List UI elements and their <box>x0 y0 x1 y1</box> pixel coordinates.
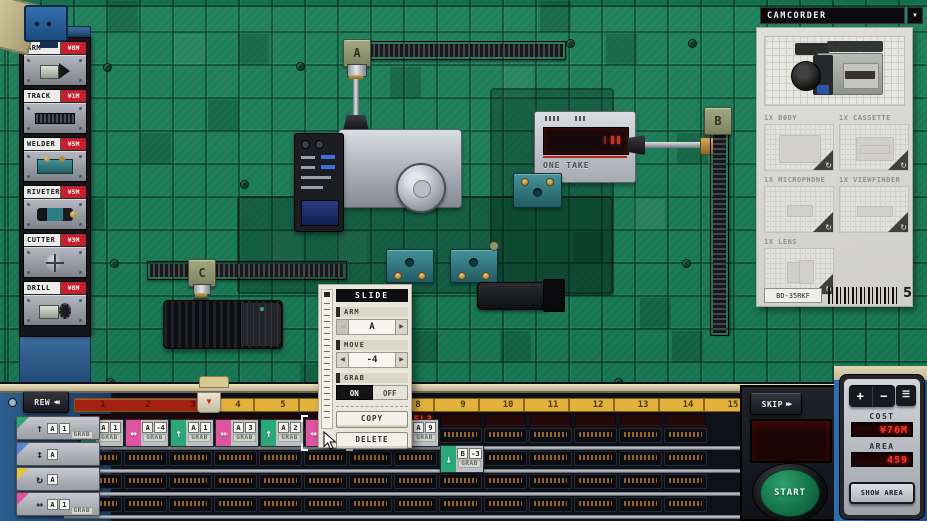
cost-machine: + − ☰ COST ¥76M AREA 459 SHOW AREA <box>834 366 927 521</box>
arm-stepper: ◀ A ▶ <box>336 319 408 335</box>
instruction-block[interactable]: ↔A3GRAB <box>215 419 259 447</box>
part-silhouette <box>799 260 814 284</box>
chevron-down-icon[interactable]: ▼ <box>907 7 923 24</box>
skip-label: SKIP <box>762 400 783 409</box>
rotate-icon: ↻ <box>825 223 832 232</box>
zoom-in-button[interactable]: + <box>849 386 872 407</box>
block-cell: 1 <box>59 499 70 510</box>
part-cell-microphone[interactable]: 1X MICROPHONE↻ <box>764 176 834 234</box>
deck-rail <box>64 492 740 496</box>
timeline-socket[interactable] <box>484 497 527 512</box>
skip-icon: ▶▶ <box>786 400 790 408</box>
ruler-number: 4 <box>216 400 260 410</box>
block-cell: -4 <box>154 422 166 433</box>
palette-block-lr[interactable]: ↔A1GRAB <box>16 492 100 516</box>
rotate-icon: ↻ <box>900 161 907 170</box>
camcorder-control-panel[interactable] <box>294 133 344 232</box>
tool-price-badge: ¥8M <box>61 42 86 54</box>
block-cell: A <box>47 449 58 460</box>
down-arrow-icon: ↓ <box>441 446 456 472</box>
led-display <box>665 414 706 426</box>
paper-fold <box>883 277 913 307</box>
camcorder-lens-mount[interactable] <box>396 163 446 213</box>
rewind-button[interactable]: REW◀◀ <box>23 391 69 413</box>
block-cell: -3 <box>469 448 481 459</box>
block-cell: 1 <box>200 422 211 433</box>
product-image <box>764 36 905 106</box>
move-value: -4 <box>349 352 395 368</box>
ruler-number: 5 <box>261 400 305 410</box>
arm-section-label: ARM <box>336 307 408 317</box>
area-value-display: 459 <box>851 452 913 467</box>
tile-shade <box>174 34 205 65</box>
tile-shade <box>238 34 269 65</box>
ruler-number: 12 <box>576 400 620 410</box>
grab-tag: GRAB <box>143 434 165 442</box>
timeline-socket[interactable] <box>349 451 392 466</box>
tile-shade <box>540 1 571 32</box>
timeline-socket[interactable] <box>304 474 347 489</box>
move-prev-button[interactable]: ◀ <box>336 352 349 368</box>
timeline-socket[interactable] <box>574 474 617 489</box>
cost-panel-frame: + − ☰ COST ¥76M AREA 459 SHOW AREA <box>839 374 925 520</box>
part-quantity-label: 1X LENS <box>764 238 834 248</box>
tool-price-badge: ¥5M <box>61 186 86 198</box>
timeline-socket[interactable] <box>619 428 662 443</box>
palette-corner <box>17 493 29 505</box>
led-display <box>620 414 661 426</box>
mouse-cursor <box>323 431 339 451</box>
tool-price-badge: ¥8M <box>61 282 86 294</box>
timeline-socket[interactable] <box>169 474 212 489</box>
arm-b-carriage[interactable]: B <box>704 107 732 135</box>
timeline-socket[interactable] <box>484 474 527 489</box>
tool-card-drill[interactable]: DRILL¥8M <box>23 281 87 326</box>
machine-arm-head <box>24 5 68 42</box>
instruction-block[interactable]: ↑A2GRAB <box>260 419 304 447</box>
screw-icon <box>566 39 575 48</box>
led-display <box>440 414 481 426</box>
up-arrow-icon: ↑ <box>171 420 186 446</box>
part-silhouette <box>779 135 821 163</box>
block-cell: A <box>188 422 199 433</box>
led-display <box>530 414 571 426</box>
tile-shade <box>606 34 637 65</box>
start-label: START <box>774 488 806 498</box>
arm-value: A <box>349 319 395 335</box>
timeline-socket[interactable] <box>349 497 392 512</box>
tool-sidebar: ARM¥8MTRACK¥1MWELDER¥5MRIVETER¥5MCUTTER¥… <box>19 37 91 337</box>
block-cell: A <box>47 499 58 510</box>
welded-part-1[interactable] <box>386 249 434 283</box>
skip-button[interactable]: SKIP▶▶ <box>750 393 802 415</box>
screw-icon <box>110 259 119 268</box>
timeline-ruler: 123456789101112131415 <box>74 398 750 412</box>
timeline-socket[interactable] <box>259 474 302 489</box>
rewind-label: REW <box>34 398 50 407</box>
delete-button[interactable]: DELETE <box>336 432 408 449</box>
ruler-number: 9 <box>441 400 485 410</box>
welded-part-3[interactable] <box>513 173 562 208</box>
screw-icon <box>296 62 305 71</box>
block-cell: A <box>47 423 58 434</box>
timeline-socket[interactable] <box>394 474 437 489</box>
part-quantity-label: 1X VIEWFINDER <box>839 176 909 186</box>
up-arrow-icon: ↑ <box>32 422 47 435</box>
timeline-socket[interactable] <box>214 497 257 512</box>
part-silhouette <box>857 206 893 217</box>
rotate-icon: ↻ <box>825 161 832 170</box>
timeline-socket[interactable] <box>259 451 302 466</box>
zoom-out-button[interactable]: − <box>872 386 896 407</box>
timeline-socket[interactable] <box>304 451 347 466</box>
timeline-socket[interactable] <box>664 474 707 489</box>
ruler-number: 13 <box>621 400 665 410</box>
instruction-popup: ↓ SLIDE ARM ◀ A ▶ MOVE ◀ -4 ▶ GRAB ON OF… <box>318 284 412 448</box>
tile-shade <box>500 331 531 362</box>
microphone-part[interactable] <box>477 282 549 310</box>
palette-corner <box>17 417 29 429</box>
timeline-socket[interactable] <box>169 497 212 512</box>
timeline-socket[interactable] <box>574 428 617 443</box>
horizontal-arrow-icon: ↔ <box>216 420 231 446</box>
palette-corner <box>17 443 29 455</box>
timeline-socket[interactable] <box>394 451 437 466</box>
timeline-socket[interactable] <box>574 497 617 512</box>
rewind-icon: ◀◀ <box>53 398 57 406</box>
grab-off-option[interactable]: OFF <box>373 385 409 400</box>
deck-top-edge <box>0 384 836 393</box>
timeline-deck: REW◀◀ 123456789101112131415 ▼ EL3 ↑A1GRA… <box>0 382 927 521</box>
move-next-button[interactable]: ▶ <box>395 352 408 368</box>
arm-a-carriage[interactable]: A <box>343 39 371 67</box>
block-cell: A <box>233 422 244 433</box>
instruction-block[interactable]: ↔A-4GRAB <box>125 419 169 447</box>
grab-tag: GRAB <box>413 434 435 442</box>
block-cell: B <box>457 448 468 459</box>
timeline-socket[interactable] <box>619 451 662 466</box>
screw-icon <box>103 63 112 72</box>
screw-icon <box>688 39 697 48</box>
deck-rail <box>64 515 740 519</box>
palette-block-rot[interactable]: ↻A <box>16 467 100 491</box>
grab-tag: GRAB <box>98 434 120 442</box>
tile-shade <box>634 199 665 230</box>
tool-label: DRILL <box>24 282 61 294</box>
rotate-icon: ↻ <box>900 223 907 232</box>
drill-icon <box>39 303 71 319</box>
block-cell: 1 <box>59 423 70 434</box>
timeline-socket[interactable] <box>529 451 572 466</box>
timeline-socket[interactable] <box>619 497 662 512</box>
popup-divider <box>336 406 408 407</box>
playhead-marker[interactable]: ▼ <box>197 392 221 413</box>
tool-label: RIVETER <box>24 186 61 198</box>
block-cell: A <box>142 422 153 433</box>
tool-label: WELDER <box>24 138 61 150</box>
timeline-socket[interactable] <box>529 497 572 512</box>
grab-on-option[interactable]: ON <box>336 385 373 400</box>
timeline-socket[interactable] <box>439 428 482 443</box>
vertical-arrows-icon: ↕ <box>32 448 47 461</box>
tile-shade <box>140 133 171 164</box>
grab-section-label: GRAB <box>336 373 408 383</box>
move-section-label: MOVE <box>336 340 408 350</box>
arm-b-rod <box>645 142 703 148</box>
arm-c-ring <box>195 293 207 297</box>
product-code: BD-35RKF <box>764 288 822 303</box>
arm-icon <box>40 63 70 79</box>
block-cell: 9 <box>425 422 436 433</box>
instruction-block[interactable]: ↑A1GRAB <box>170 419 214 447</box>
tool-card-track[interactable]: TRACK¥1M <box>23 89 87 134</box>
screw-icon <box>240 180 249 189</box>
pin-part[interactable] <box>489 241 499 251</box>
led-display <box>575 414 616 426</box>
timeline-socket[interactable] <box>529 474 572 489</box>
palette-corner <box>17 468 29 480</box>
timeline-socket[interactable] <box>394 497 437 512</box>
grab-tag: GRAB <box>278 434 300 442</box>
ruler-number: 14 <box>666 400 710 410</box>
arm-prev-button[interactable]: ◀ <box>336 319 349 335</box>
timeline-socket[interactable] <box>124 474 167 489</box>
tile-shade <box>390 67 421 98</box>
grab-tag: GRAB <box>188 434 210 442</box>
screw-icon <box>682 259 691 268</box>
timeline-socket[interactable] <box>484 428 527 443</box>
show-area-button[interactable]: SHOW AREA <box>849 482 915 504</box>
part-silhouette <box>860 145 890 154</box>
grab-tag: GRAB <box>233 434 255 442</box>
part-quantity-label: 1X B0DY <box>764 114 834 124</box>
product-panel: CAMCORDER ▼ 1X B0DY↻1X CASSETTE↻1X MICRO… <box>753 3 918 313</box>
popup-ruler-strip <box>321 289 333 429</box>
grab-tag: GRAB <box>71 431 93 439</box>
run-display <box>750 419 832 463</box>
microphone-cap <box>543 279 565 312</box>
run-console: SKIP▶▶ START <box>740 385 836 521</box>
arm-a-rod <box>353 79 359 117</box>
block-cell: A <box>47 474 58 485</box>
tool-card-welder[interactable]: WELDER¥5M <box>23 137 87 182</box>
timeline-socket[interactable] <box>169 451 212 466</box>
timeline-socket[interactable] <box>124 451 167 466</box>
grab-tag: GRAB <box>71 507 93 515</box>
timeline-socket[interactable] <box>574 451 617 466</box>
palette-block-up[interactable]: ↑A1GRAB <box>16 416 100 440</box>
palette-block-ud[interactable]: ↕A <box>16 442 100 466</box>
start-button-ring: START <box>752 463 828 521</box>
tool-label: CUTTER <box>24 234 61 246</box>
tool-card-cutter[interactable]: CUTTER¥3M <box>23 233 87 278</box>
timeline-socket[interactable] <box>664 497 707 512</box>
timeline-socket[interactable] <box>439 497 482 512</box>
move-stepper: ◀ -4 ▶ <box>336 352 408 368</box>
tool-label: TRACK <box>24 90 61 102</box>
welder-icon <box>37 159 73 174</box>
track-a[interactable] <box>357 41 566 60</box>
grab-toggle: ON OFF <box>336 385 408 400</box>
menu-button[interactable]: ☰ <box>896 385 916 406</box>
part-cell-viewfinder[interactable]: 1X VIEWFINDER↻ <box>839 176 909 234</box>
part-cell-cassette[interactable]: 1X CASSETTE↻ <box>839 114 909 172</box>
ruler-number: 11 <box>531 400 575 410</box>
block-cell: 3 <box>245 422 256 433</box>
arm-c-carriage[interactable]: C <box>188 259 216 287</box>
rotate-icon: ↻ <box>32 473 47 486</box>
timeline-socket[interactable] <box>619 474 662 489</box>
timeline-socket[interactable] <box>124 497 167 512</box>
part-quantity-label: 1X CASSETTE <box>839 114 909 124</box>
ruler-number: 1 <box>81 400 125 410</box>
grab-tag: GRAB <box>458 460 480 468</box>
timeline-socket[interactable] <box>664 428 707 443</box>
part-silhouette <box>787 205 813 217</box>
tool-price-badge: ¥1M <box>61 90 86 102</box>
tile-shade <box>672 331 703 362</box>
timeline-socket[interactable] <box>484 451 527 466</box>
timeline-socket[interactable] <box>259 497 302 512</box>
ruler-number: 10 <box>486 400 530 410</box>
timeline-socket[interactable] <box>529 428 572 443</box>
tile-shade <box>208 100 239 131</box>
cutter-icon <box>46 254 64 272</box>
start-button[interactable]: START <box>760 469 820 517</box>
ruler-number: 2 <box>126 400 170 410</box>
cost-label: COST <box>844 412 920 421</box>
track-c[interactable] <box>147 261 347 280</box>
tile-shade <box>640 298 671 329</box>
spec-sheet: 1X B0DY↻1X CASSETTE↻1X MICROPHONE↻1X VIE… <box>756 27 913 307</box>
tool-price-badge: ¥3M <box>61 234 86 246</box>
block-cell: 2 <box>290 422 301 433</box>
lens-part[interactable] <box>163 300 283 349</box>
part-cell-body[interactable]: 1X B0DY↻ <box>764 114 834 172</box>
block-cell: A <box>413 422 424 433</box>
arm-b-gripper[interactable] <box>628 135 645 155</box>
riveter-icon <box>37 208 73 221</box>
product-selector[interactable]: CAMCORDER <box>760 7 905 24</box>
track-icon <box>35 113 75 124</box>
timeline-socket[interactable] <box>214 474 257 489</box>
track-b[interactable] <box>710 132 729 336</box>
kaizen-factory-screen: A ONE TAKE <box>0 0 927 521</box>
timeline-socket[interactable] <box>439 474 482 489</box>
led-display <box>485 414 526 426</box>
popup-title: SLIDE <box>336 289 408 302</box>
block-cell: 1 <box>110 422 121 433</box>
area-label: AREA <box>844 442 920 451</box>
deck-rail <box>64 469 740 473</box>
timeline-socket[interactable] <box>304 497 347 512</box>
cost-value-display: ¥76M <box>851 422 913 437</box>
block-cell: A <box>278 422 289 433</box>
tool-price-badge: ¥5M <box>61 138 86 150</box>
timeline-socket[interactable] <box>664 451 707 466</box>
horizontal-arrow-icon: ↔ <box>32 498 47 511</box>
tile-shade <box>107 1 138 32</box>
arm-next-button[interactable]: ▶ <box>395 319 408 335</box>
device-brand-text: ONE TAKE <box>543 161 590 170</box>
welded-part-2[interactable] <box>450 249 498 283</box>
marker-handle[interactable] <box>199 376 229 388</box>
part-quantity-label: 1X MICROPHONE <box>764 176 834 186</box>
timeline-socket[interactable] <box>214 451 257 466</box>
copy-button[interactable]: COPY <box>336 411 408 428</box>
horizontal-arrow-icon: ↔ <box>126 420 141 446</box>
timeline-socket[interactable] <box>349 474 392 489</box>
up-arrow-icon: ↑ <box>261 420 276 446</box>
zoom-button-group: + − <box>849 385 895 407</box>
instruction-block[interactable]: ↓B-3GRAB <box>440 445 484 473</box>
show-area-label: SHOW AREA <box>851 484 913 502</box>
tool-card-riveter[interactable]: RIVETER¥5M <box>23 185 87 230</box>
cost-panel-face: + − ☰ COST ¥76M AREA 459 SHOW AREA <box>844 379 920 515</box>
